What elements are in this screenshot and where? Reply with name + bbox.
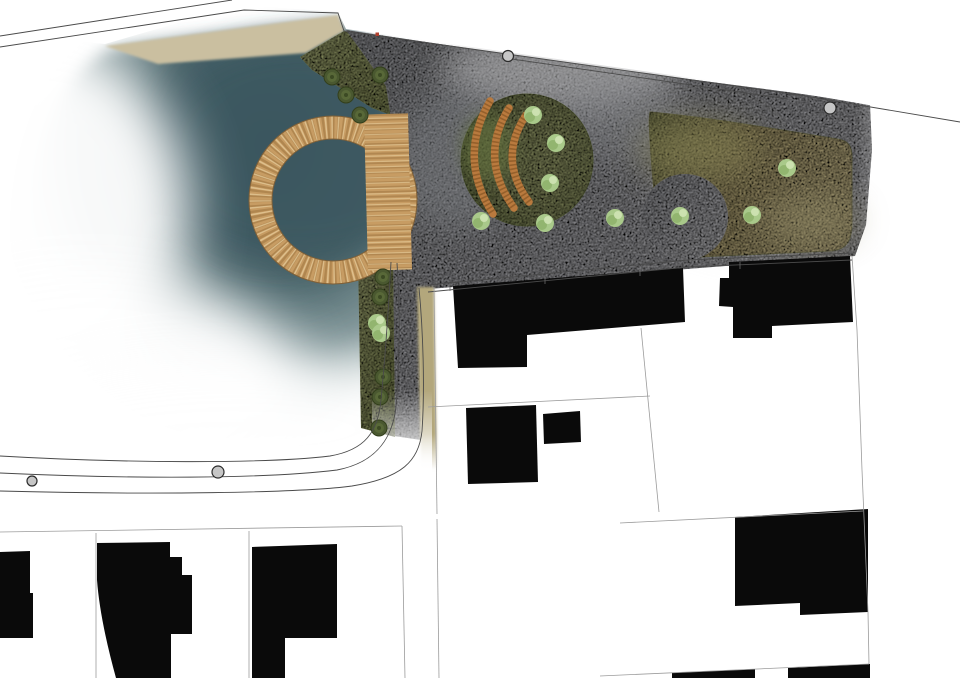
shrub-light-highlight — [532, 108, 540, 116]
building-footprint — [672, 669, 755, 678]
building-footprint — [97, 542, 192, 678]
building-footprint — [719, 256, 853, 338]
street-tree-marker — [27, 476, 37, 486]
building-footprint — [0, 551, 33, 638]
building-footprint — [466, 405, 538, 484]
building-footprint — [735, 509, 868, 615]
tree-dark-core — [381, 275, 385, 279]
tree-dark-core — [377, 426, 381, 430]
site-plan-svg — [0, 0, 960, 678]
fade-east — [856, 58, 960, 273]
shrub-light-highlight — [544, 216, 552, 224]
parcel-line — [437, 519, 439, 678]
parcel-line — [428, 396, 650, 407]
street-tree-marker — [212, 466, 224, 478]
shrub-light-highlight — [751, 208, 759, 216]
shrub-light-highlight — [614, 211, 622, 219]
street-tree-marker — [503, 51, 514, 62]
building-footprint — [543, 411, 581, 444]
shrub-light-highlight — [786, 161, 794, 169]
tree-dark-core — [378, 73, 382, 77]
parcel-line — [0, 526, 402, 532]
shrub-light-highlight — [549, 176, 557, 184]
parcel-line — [402, 526, 405, 678]
shrub-light-highlight — [555, 136, 563, 144]
lawn-mottle — [640, 120, 760, 180]
building-footprint — [252, 544, 337, 678]
parcel-line — [641, 328, 659, 512]
amphitheater-moss — [462, 114, 514, 182]
street-tree-marker — [824, 102, 836, 114]
survey-red-dot — [376, 33, 380, 37]
tree-dark-core — [378, 295, 382, 299]
shrub-light-highlight — [376, 316, 384, 324]
tree-dark-core — [330, 75, 334, 79]
masterplan-figure — [0, 0, 960, 678]
plan-layers — [0, 0, 960, 678]
tree-dark-core — [344, 93, 348, 97]
tree-dark-core — [358, 113, 362, 117]
shrub-light-highlight — [679, 209, 687, 217]
lawn-mottle — [760, 195, 860, 245]
shrub-light-highlight — [480, 214, 488, 222]
